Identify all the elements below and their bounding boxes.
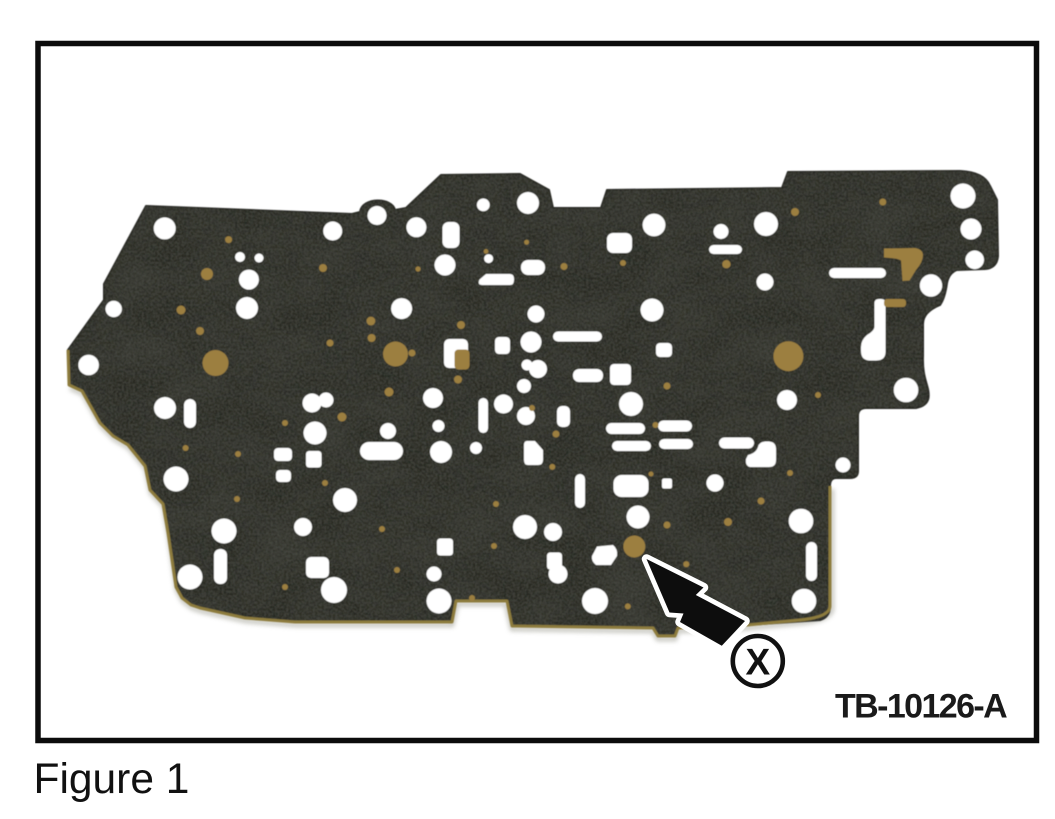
svg-text:TB-10126-A: TB-10126-A — [835, 688, 1007, 726]
svg-text:Figure 1: Figure 1 — [34, 756, 190, 803]
svg-text:X: X — [745, 642, 770, 683]
